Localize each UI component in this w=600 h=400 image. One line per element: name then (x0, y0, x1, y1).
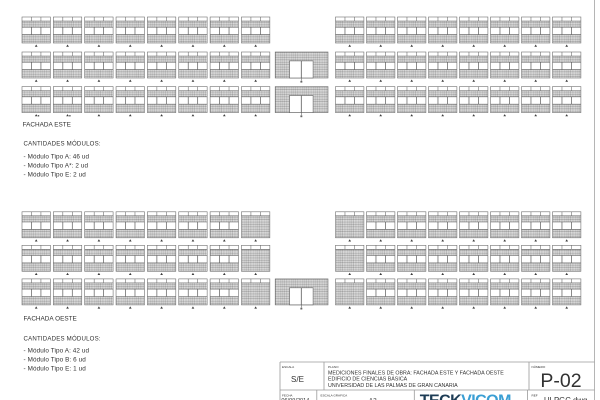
svg-text:UNIVERSIDAD DE LAS PALMAS DE G: UNIVERSIDAD DE LAS PALMAS DE GRAN CANARI… (328, 383, 458, 389)
svg-text:ULPGC dwg: ULPGC dwg (544, 396, 587, 400)
svg-text:- Módulo Tipo A: 46 ud: - Módulo Tipo A: 46 ud (24, 154, 90, 161)
svg-text:REF: REF (532, 393, 538, 397)
svg-text:S/E: S/E (291, 375, 304, 384)
svg-text:NÚMERO: NÚMERO (532, 365, 546, 369)
svg-text:P-02: P-02 (540, 370, 581, 392)
svg-text:EDIFICIO DE CIENCIAS BÁSICA: EDIFICIO DE CIENCIAS BÁSICA (328, 376, 408, 383)
svg-text:FACHADA OESTE: FACHADA OESTE (24, 316, 77, 323)
svg-text:CANTIDADES MÓDULOS:: CANTIDADES MÓDULOS: (24, 141, 101, 148)
svg-text:CANTIDADES MÓDULOS:: CANTIDADES MÓDULOS: (24, 335, 101, 342)
svg-text:FACHADA ESTE: FACHADA ESTE (23, 122, 71, 129)
svg-text:- Módulo Tipo E: 2 ud: - Módulo Tipo E: 2 ud (24, 172, 87, 179)
svg-text:ESCALA: ESCALA (282, 365, 295, 369)
svg-text:FECHA: FECHA (282, 393, 293, 397)
svg-text:PLANO: PLANO (328, 365, 339, 369)
svg-text:MEDICIONES FINALES DE OBRA: FA: MEDICIONES FINALES DE OBRA: FACHADA ESTE… (328, 370, 504, 376)
svg-text:- Módulo Tipo B: 6 ud: - Módulo Tipo B: 6 ud (24, 357, 87, 364)
svg-text:- Módulo Tipo E: 1 ud: - Módulo Tipo E: 1 ud (24, 366, 87, 373)
svg-text:ESCALA GRAFICA: ESCALA GRAFICA (321, 393, 349, 397)
svg-text:- Módulo Tipo A: 42 ud: - Módulo Tipo A: 42 ud (24, 348, 90, 355)
svg-text:- Módulo Tipo A*: 2 ud: - Módulo Tipo A*: 2 ud (24, 163, 89, 170)
svg-text:TECKVICOM: TECKVICOM (420, 393, 511, 400)
